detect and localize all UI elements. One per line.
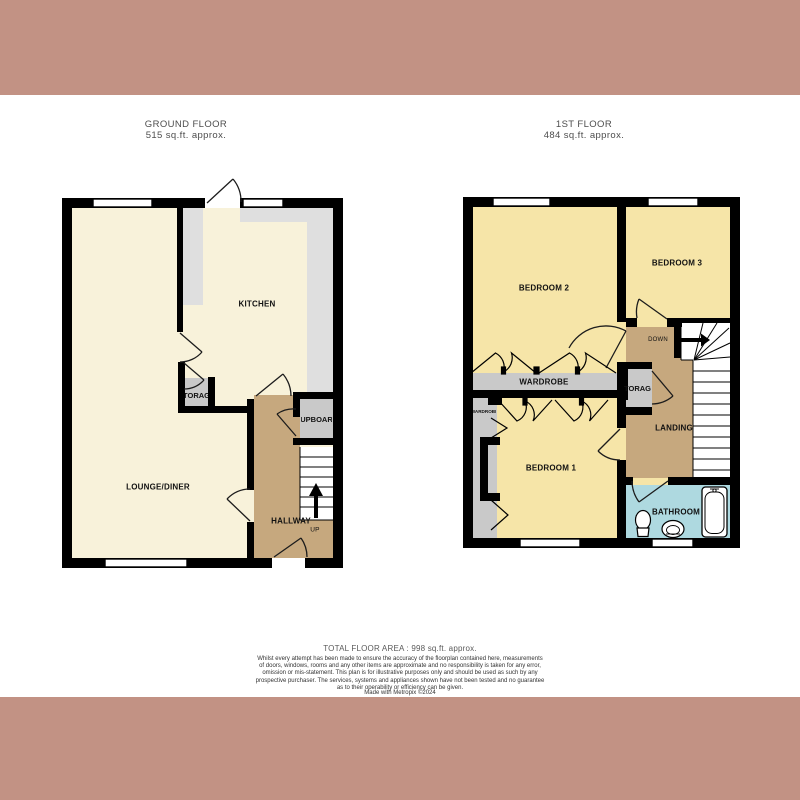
ground-storage-label: STORAGE — [185, 389, 208, 401]
first-storage-label: STORAGE — [624, 382, 651, 394]
bedroom3-label: BEDROOM 3 — [652, 259, 702, 268]
ground-floor-plan — [62, 179, 343, 568]
bedroom1-wardrobe-label: WARDROBE — [473, 407, 496, 416]
bathtub-icon — [702, 487, 727, 537]
total-floor-area: TOTAL FLOOR AREA : 998 sq.ft. approx. — [0, 644, 800, 653]
floorplan-page: GROUND FLOOR 515 sq.ft. approx. 1ST FLOO… — [0, 0, 800, 800]
first-floor-plan — [463, 197, 740, 548]
wardrobe-label: WARDROBE — [519, 377, 568, 386]
stairs-down-label: DOWN — [648, 337, 668, 343]
disclaimer-line: Whilst every attempt has been made to en… — [0, 656, 800, 663]
hallway-label: HALLWAY — [271, 517, 311, 526]
toilet-icon — [636, 511, 651, 537]
disclaimer-line: of doors, windows, rooms and any other i… — [0, 663, 800, 670]
disclaimer-line: prospective purchaser. The services, sys… — [0, 678, 800, 685]
metropix-credit: Made with Metropix ©2024 — [0, 690, 800, 696]
lounge-diner-label: LOUNGE/DINER — [126, 483, 190, 492]
bedroom2-label: BEDROOM 2 — [519, 284, 569, 293]
stairs-up-label: UP — [310, 527, 319, 534]
landing-label: LANDING — [655, 424, 693, 433]
kitchen-label: KITCHEN — [239, 300, 276, 309]
bathroom-label: BATHROOM — [652, 508, 700, 517]
cupboard-label: CUPBOARD — [301, 413, 332, 425]
disclaimer-text: Whilst every attempt has been made to en… — [0, 656, 800, 692]
sink-icon — [662, 521, 684, 538]
ground-stairs — [300, 447, 333, 520]
bedroom1-label: BEDROOM 1 — [526, 464, 576, 473]
disclaimer-line: omission or mis-statement. This plan is … — [0, 670, 800, 677]
